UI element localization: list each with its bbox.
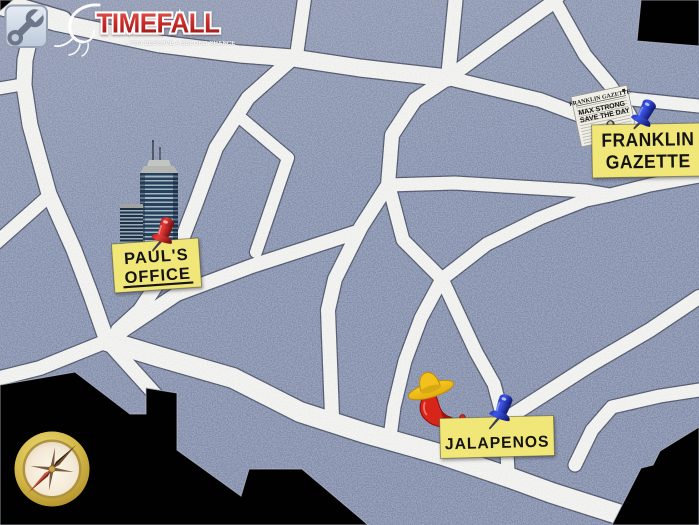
- svg-text:TIMEFALL: TIMEFALL: [96, 7, 219, 38]
- svg-text:...YOU DESERVE A SECOND CHANCE: ...YOU DESERVE A SECOND CHANCE: [124, 41, 235, 47]
- svg-text:JALAPENOS: JALAPENOS: [445, 433, 550, 453]
- svg-text:GAZETTE: GAZETTE: [606, 150, 691, 173]
- svg-text:FRANKLIN: FRANKLIN: [601, 127, 694, 150]
